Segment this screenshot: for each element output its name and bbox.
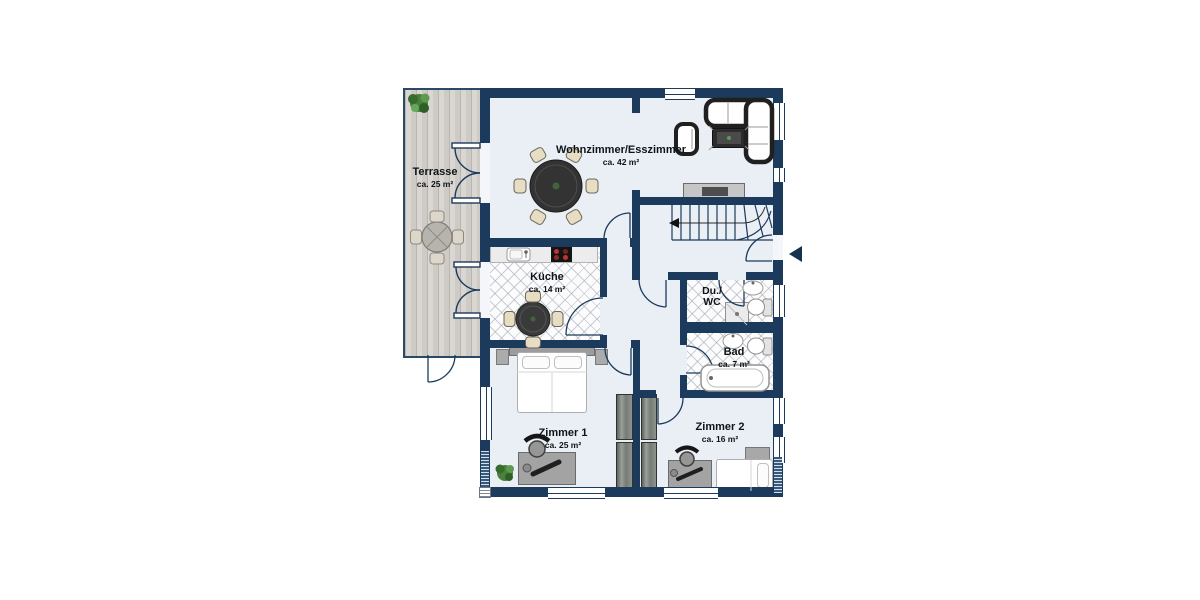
wall [746, 272, 773, 280]
wall [773, 317, 783, 398]
desk-zimmer2 [668, 460, 712, 488]
window [773, 398, 785, 424]
window [773, 168, 785, 182]
room-name: Terrasse [412, 166, 457, 178]
window [773, 285, 785, 317]
terrace-deck [403, 88, 485, 358]
burner [563, 249, 568, 254]
wall [680, 280, 687, 345]
room-name: Wohnzimmer/Esszimmer [556, 144, 686, 156]
room-area: ca. 14 m² [529, 284, 565, 294]
burner [563, 255, 568, 260]
room-label-kueche: Küche ca. 14 m² [529, 271, 565, 294]
watermark-strip [774, 457, 782, 493]
room-area: ca. 25 m² [412, 179, 457, 189]
room-label-du-wc: Du./ WC [702, 286, 722, 308]
room-area: ca. 42 m² [556, 157, 686, 167]
wall [773, 140, 783, 168]
wardrobe-zimmer1 [616, 442, 633, 490]
entrance-opening [773, 235, 783, 260]
wall [668, 272, 718, 280]
sideboard [683, 183, 745, 198]
wall [480, 318, 490, 387]
wall [773, 182, 783, 235]
wall [682, 390, 773, 398]
room-label-zimmer1: Zimmer 1 ca. 25 m² [539, 427, 588, 450]
nightstand [496, 349, 509, 365]
window [664, 487, 718, 499]
wall [633, 348, 640, 497]
wall [773, 88, 783, 103]
room-area: ca. 16 m² [696, 434, 745, 444]
room-label-bad: Bad ca. 7 m² [718, 346, 750, 369]
wall [632, 190, 640, 280]
window [665, 88, 695, 100]
room-name: Zimmer 1 [539, 427, 588, 439]
wall [480, 203, 490, 262]
burner [554, 249, 559, 254]
sideboard-handle [702, 187, 728, 196]
nightstand [595, 349, 608, 365]
window [480, 387, 492, 440]
wall [680, 322, 773, 333]
room-name: Bad [718, 346, 750, 358]
room-name: Zimmer 2 [696, 421, 745, 433]
kitchen-counter [490, 246, 598, 263]
door-opening [480, 262, 490, 318]
watermark-strip [481, 451, 489, 488]
room-name: Küche [529, 271, 565, 283]
wardrobe-zimmer2 [641, 394, 657, 440]
tv [712, 128, 746, 148]
wall [490, 238, 607, 247]
room-label-wohnzimmer: Wohnzimmer/Esszimmer ca. 42 m² [556, 144, 686, 167]
desk-zimmer1 [518, 452, 576, 485]
wall [773, 260, 783, 285]
stove [551, 247, 572, 262]
wall [640, 197, 773, 205]
wall [632, 98, 640, 113]
room-label-terrasse: Terrasse ca. 25 m² [412, 166, 457, 189]
wall [680, 375, 687, 398]
wall [640, 390, 656, 398]
wall [480, 88, 490, 143]
wall [600, 238, 607, 297]
pillow [757, 463, 769, 488]
scale-marker [479, 487, 491, 498]
wardrobe-zimmer2 [641, 442, 657, 490]
terrace-gate-door [428, 355, 455, 382]
room-area: ca. 7 m² [718, 359, 750, 369]
pillow [522, 356, 550, 369]
wall [773, 424, 783, 437]
room-name: WC [702, 297, 722, 308]
wall [490, 340, 607, 348]
entrance-arrow-icon [789, 246, 802, 262]
wall [631, 340, 640, 348]
wall [600, 335, 607, 348]
tv-led [727, 136, 731, 140]
pillow [554, 356, 582, 369]
wall [480, 88, 665, 98]
window [548, 487, 605, 499]
floorplan-canvas: Terrasse ca. 25 m² Wohnzimmer/Esszimmer … [0, 0, 1200, 600]
wall [695, 88, 783, 98]
door-opening [480, 143, 490, 203]
burner [554, 255, 559, 260]
room-label-zimmer2: Zimmer 2 ca. 16 m² [696, 421, 745, 444]
wardrobe-zimmer1 [616, 394, 633, 440]
window [773, 103, 785, 140]
room-area: ca. 25 m² [539, 440, 588, 450]
